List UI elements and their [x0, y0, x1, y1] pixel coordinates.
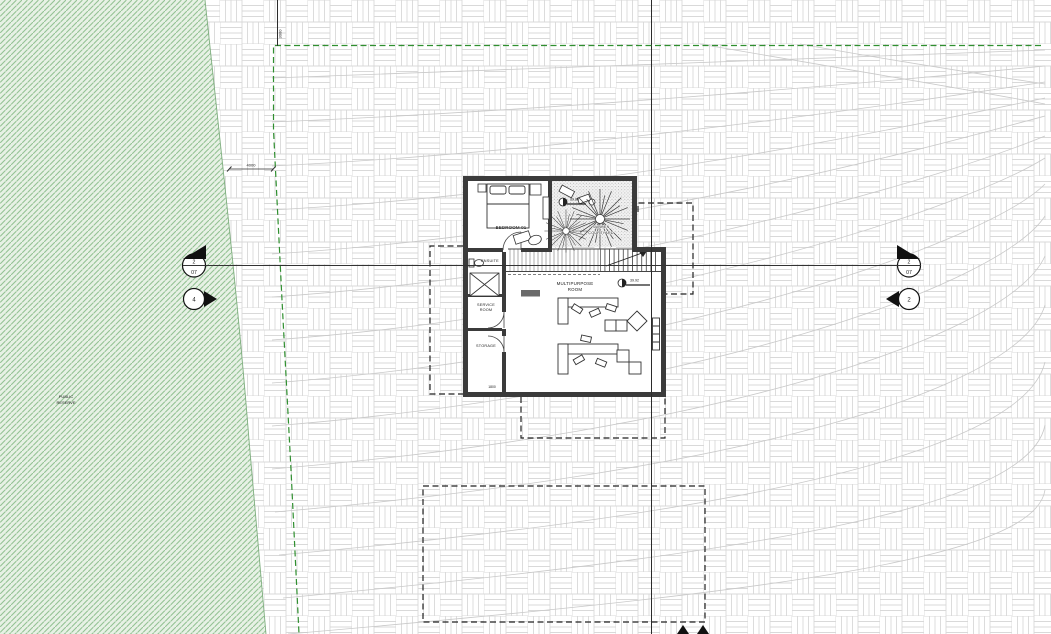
ensuite-label: ENSUITE [481, 259, 499, 263]
section-marker-left-number: 2 [193, 260, 196, 266]
multipurpose-label-line2: ROOM [568, 287, 583, 292]
stair-treads [600, 249, 658, 272]
public-reserve-label-line1: PUBLIC [59, 394, 74, 399]
storage-dimension: 1800 [488, 385, 496, 389]
bed [487, 184, 529, 228]
courtyard-label-line1: SUNKEN [592, 225, 609, 229]
dimension-north-setback-value: 3000 [278, 29, 283, 39]
service-room-label-line1: SERVICE [477, 303, 495, 307]
section-marker-right-sheet: 07 [906, 270, 912, 276]
public-reserve-label: PUBLIC RESERVE [56, 394, 75, 405]
dimension-west-setback-value: 4000 [247, 163, 257, 168]
spot-level-courtyard-value: 39.88 [570, 198, 579, 202]
courtyard-label-line2: COURTYARD [588, 231, 614, 235]
service-rooms-floor [468, 248, 502, 392]
storage-label: STORAGE [476, 344, 496, 348]
site-plan-drawing: BEDROOM 01 ENSUITE SERVICE ROOM STORAGE … [0, 0, 1051, 634]
multipurpose-label-line1: MULTIPURPOSE [557, 281, 594, 286]
drawing-canvas: BEDROOM 01 ENSUITE SERVICE ROOM STORAGE … [0, 0, 1051, 634]
shaft-cross-box [470, 273, 499, 296]
public-reserve-label-line2: RESERVE [56, 400, 75, 405]
bench-joinery [521, 290, 540, 297]
building-floor-plan: BEDROOM 01 ENSUITE SERVICE ROOM STORAGE … [463, 176, 666, 397]
bedroom-label: BEDROOM 01 [496, 225, 527, 230]
spot-level-multipurpose-value: 39.92 [630, 279, 639, 283]
deck-boards [508, 249, 600, 271]
service-room-label-line2: ROOM [480, 308, 493, 312]
section-marker-left-sheet: 07 [191, 270, 197, 276]
section-marker-right-number: 2 [908, 260, 911, 266]
